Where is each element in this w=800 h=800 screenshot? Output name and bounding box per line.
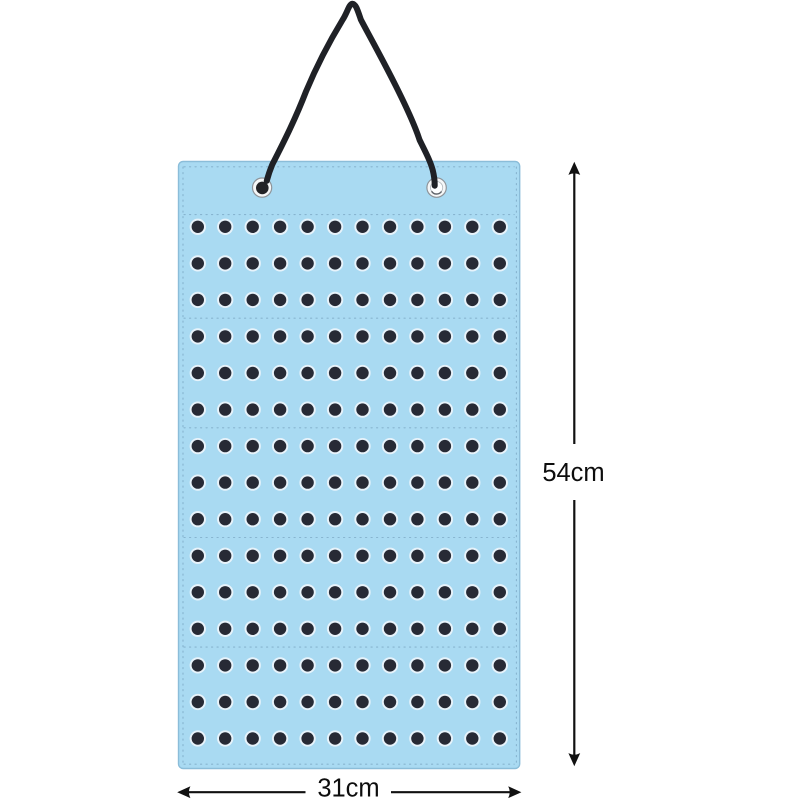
- svg-text:31cm: 31cm: [317, 774, 379, 800]
- svg-text:54cm: 54cm: [542, 459, 604, 487]
